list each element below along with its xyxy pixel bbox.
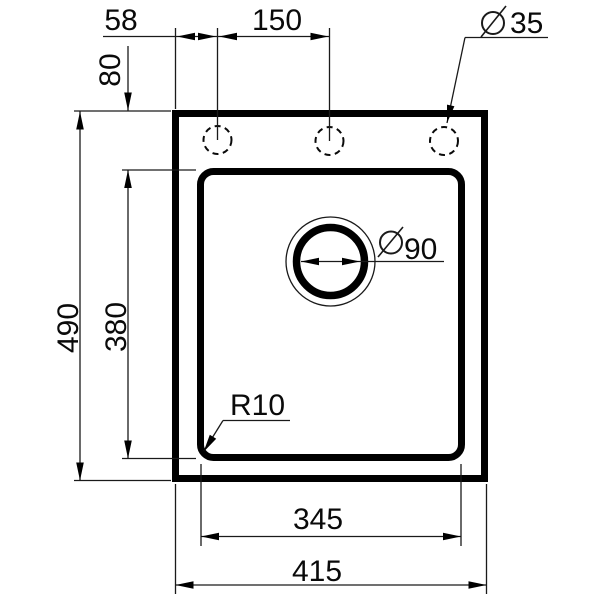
arrow-150-left [219, 33, 237, 41]
arrow-415-right [469, 581, 487, 589]
label-rim-to-bowl-top: 80 [94, 53, 127, 86]
label-faucet-hole-diameter: 35 [510, 7, 543, 40]
arrow-345-right [443, 533, 461, 541]
label-bowl-width: 345 [293, 503, 343, 536]
arrow-380-down [124, 441, 132, 459]
arrow-58-right [198, 33, 216, 41]
arrow-490-down [76, 463, 84, 481]
arrow-80-down [124, 93, 132, 111]
diameter-symbol-90 [378, 227, 403, 257]
faucet-holes [204, 126, 459, 155]
arrow-58-left [177, 33, 195, 41]
arrow-490-up [76, 112, 84, 130]
arrow-150-right [311, 33, 329, 41]
label-corner-radius: R10 [230, 389, 285, 422]
arrow-drain-right [342, 258, 360, 266]
label-overall-width: 415 [292, 555, 342, 588]
arrow-380-up [124, 170, 132, 188]
arrow-drain-left [301, 258, 319, 266]
label-bowl-depth: 380 [100, 302, 133, 352]
label-drain-diameter: 90 [404, 233, 437, 266]
arrow-345-left [201, 533, 219, 541]
label-overall-depth: 490 [52, 303, 85, 353]
diameter-symbol-35 [481, 6, 506, 37]
sink-dimension-drawing: 58 150 35 80 490 380 90 R10 345 415 [0, 0, 600, 600]
drawing-canvas: 58 150 35 80 490 380 90 R10 345 415 [0, 0, 600, 600]
arrow-leader-r10 [204, 435, 217, 452]
dimension-labels: 58 150 35 80 490 380 90 R10 345 415 [52, 4, 543, 588]
label-hole-spacing: 150 [252, 4, 302, 37]
diameter-icon-slash [481, 6, 506, 37]
label-hole-offset: 58 [104, 4, 137, 37]
arrow-415-left [176, 581, 194, 589]
faucet-hole-right [430, 127, 458, 155]
